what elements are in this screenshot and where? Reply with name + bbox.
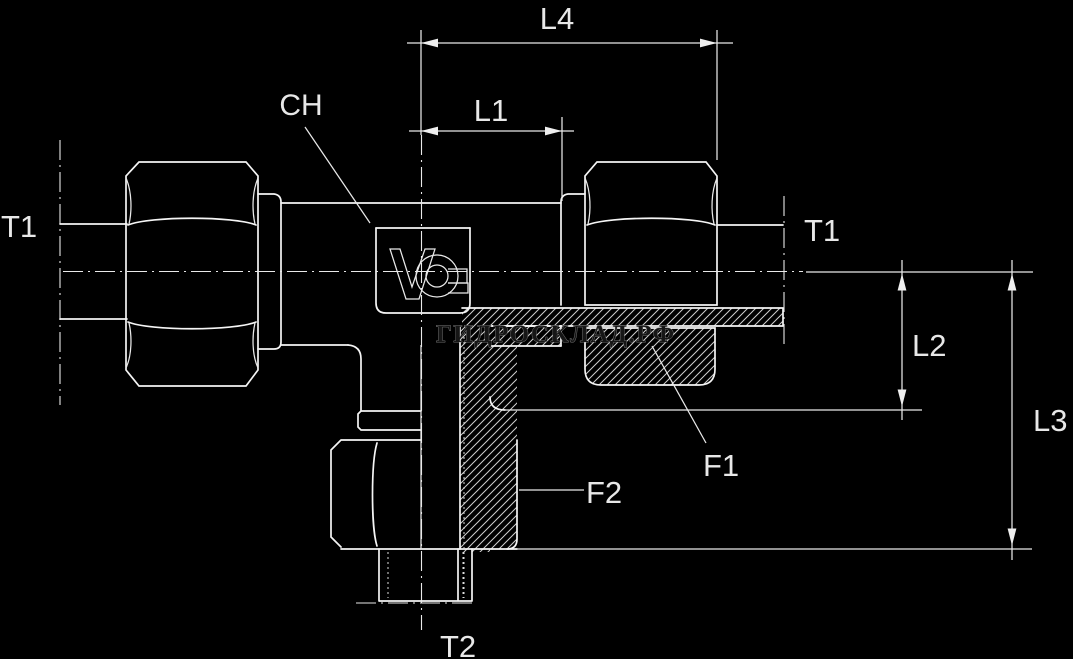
label-f2: F2	[586, 475, 622, 510]
lower-collar	[358, 411, 421, 430]
lower-nut-right-section	[490, 346, 517, 549]
watermark-text: ГИДРОСКЛАД.РФ	[436, 321, 676, 348]
label-t1-left: T1	[1, 209, 37, 244]
label-l1: L1	[474, 93, 508, 128]
drawing-canvas: ГИДРОСКЛАД.РФ L4 L1 CH T1 T1 L2 L3 F1 F2…	[0, 0, 1073, 659]
label-t1-right: T1	[804, 213, 840, 248]
label-l2: L2	[912, 328, 946, 363]
dim-l4	[407, 30, 733, 160]
voss-logo-icon	[390, 249, 468, 299]
label-l4: L4	[540, 1, 574, 36]
body	[281, 194, 585, 411]
left-swivel-nut	[126, 162, 281, 386]
dimensions	[305, 30, 1033, 560]
tee-fitting-drawing: ГИДРОСКЛАД.РФ L4 L1 CH T1 T1 L2 L3 F1 F2…	[0, 0, 1073, 659]
dim-l1	[409, 117, 574, 201]
label-l3: L3	[1033, 403, 1067, 438]
right-swivel-nut	[585, 162, 783, 305]
bottom-stud	[379, 549, 472, 601]
right-collar	[561, 194, 585, 305]
label-t2: T2	[440, 629, 476, 659]
label-f1: F1	[703, 448, 739, 483]
label-ch: CH	[279, 89, 322, 122]
ch-leader-line	[305, 127, 370, 223]
